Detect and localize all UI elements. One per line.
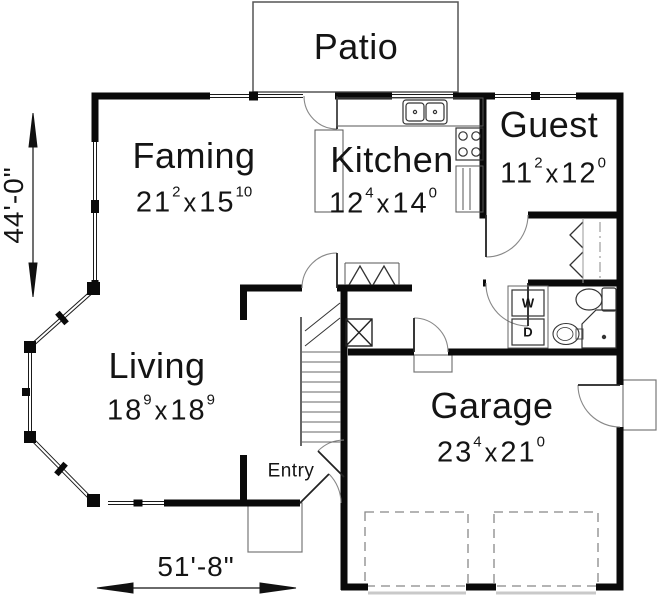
dimension-arrow-horizontal [97, 583, 296, 593]
room-label-entry: Entry [268, 462, 315, 481]
overall-width-dimension: 51'-8" [157, 553, 234, 581]
dimension-arrow-vertical [29, 113, 37, 297]
room-label-living: Living [108, 348, 205, 384]
stairs [301, 303, 341, 446]
floor-plan: Patio Faming 212x1510 Kitchen 124x140 Gu… [0, 0, 657, 600]
room-label-garage: Garage [430, 388, 553, 424]
x-box-chase [346, 319, 372, 346]
room-label-patio: Patio [314, 29, 399, 65]
room-label-family: Faming [132, 138, 255, 174]
room-dim-garage: 234x210 [437, 439, 545, 468]
closet-walls [345, 218, 583, 285]
room-label-kitchen: Kitchen [330, 142, 454, 178]
toilet-icon [576, 288, 616, 311]
floor-plan-drawing [0, 0, 657, 600]
room-dim-family: 212x1510 [136, 189, 252, 218]
shower-icon [582, 310, 616, 348]
garage-door-outlines [365, 512, 598, 586]
closet-bifold-doors [349, 222, 583, 285]
kitchen-sink-icon [403, 100, 447, 124]
room-dim-living: 189x189 [107, 397, 215, 426]
stove-icon [456, 128, 483, 160]
bathroom-sink-icon [553, 324, 583, 345]
room-dim-kitchen: 124x140 [329, 190, 437, 219]
room-dim-guest: 112x120 [500, 160, 606, 189]
overall-depth-dimension: 44'-0" [0, 166, 28, 243]
refrigerator-icon [456, 166, 483, 212]
dryer-label: D [523, 326, 532, 339]
room-label-guest: Guest [500, 107, 599, 143]
washer-label: W [522, 297, 534, 310]
